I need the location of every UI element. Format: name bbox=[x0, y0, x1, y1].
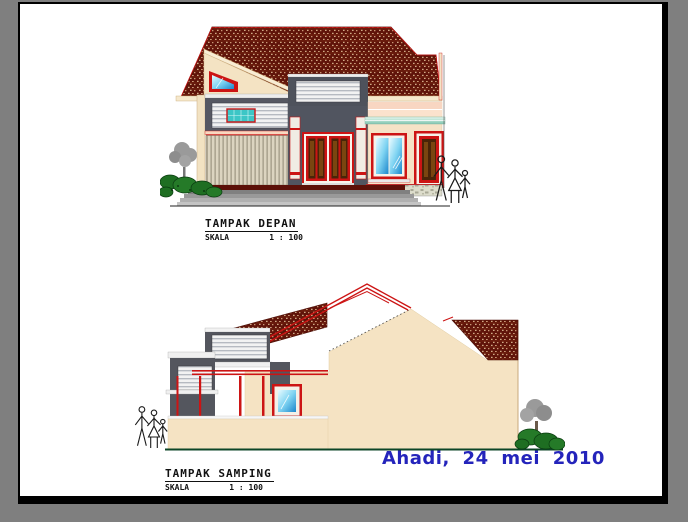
garage-door bbox=[206, 136, 292, 186]
front-elevation-titleblock: TAMPAK DEPAN SKALA 1 : 100 bbox=[205, 214, 303, 242]
side-scale-label: SKALA bbox=[165, 483, 189, 492]
entry-double-doors bbox=[302, 132, 354, 186]
front-elevation-scale: SKALA 1 : 100 bbox=[205, 233, 303, 242]
tree-icon bbox=[515, 399, 565, 450]
glass-block-vent bbox=[227, 109, 255, 122]
side-elevation-title: TAMPAK SAMPING bbox=[165, 468, 274, 482]
drawing-sheet: TAMPAK DEPAN SKALA 1 : 100 bbox=[18, 2, 668, 504]
side-elevation-scale: SKALA 1 : 100 bbox=[165, 483, 263, 492]
front-elevation-svg bbox=[160, 20, 490, 220]
side-elevation-drawing bbox=[130, 272, 565, 467]
right-window bbox=[368, 133, 410, 183]
front-scale-label: SKALA bbox=[205, 233, 229, 242]
entry-pillar-left bbox=[290, 117, 300, 179]
entry-pillar-right bbox=[356, 117, 366, 179]
people-icon bbox=[135, 407, 167, 448]
front-elevation-drawing bbox=[160, 20, 490, 220]
side-scale-value: 1 : 100 bbox=[229, 483, 263, 492]
front-scale-value: 1 : 100 bbox=[269, 233, 303, 242]
entry-louver-vent bbox=[296, 81, 360, 102]
front-elevation-title: TAMPAK DEPAN bbox=[205, 218, 298, 232]
right-door bbox=[414, 131, 444, 188]
side-window bbox=[272, 384, 302, 418]
fence-wall bbox=[168, 416, 328, 449]
side-elevation-svg bbox=[130, 272, 565, 467]
side-elevation-titleblock: TAMPAK SAMPING SKALA 1 : 100 bbox=[165, 464, 274, 492]
entry-section bbox=[288, 74, 368, 186]
garage-block bbox=[197, 82, 303, 185]
viewer-background: TAMPAK DEPAN SKALA 1 : 100 bbox=[0, 0, 688, 522]
signature-text: Ahadi, 24 mei 2010 bbox=[382, 448, 582, 469]
